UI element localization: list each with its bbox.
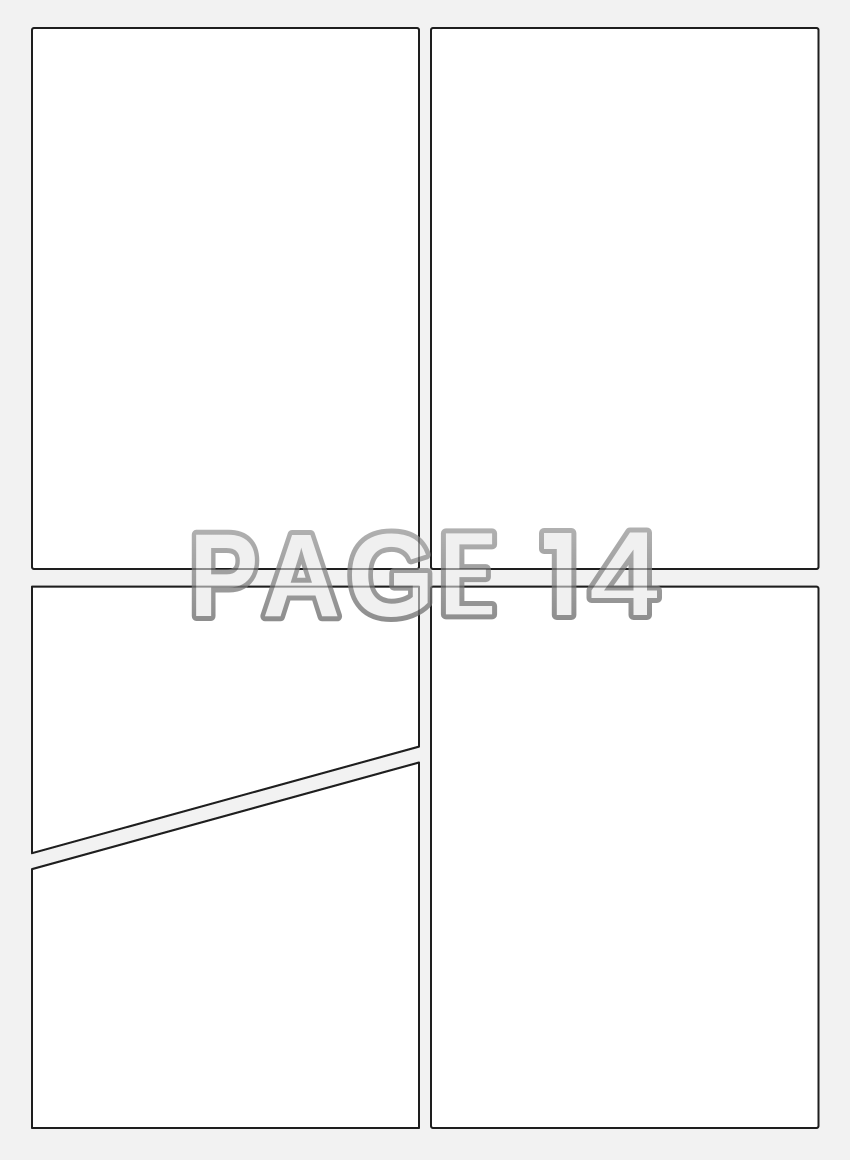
svg-text:G: G	[347, 510, 434, 642]
svg-text:P: P	[189, 510, 258, 642]
svg-text:A: A	[262, 510, 340, 642]
